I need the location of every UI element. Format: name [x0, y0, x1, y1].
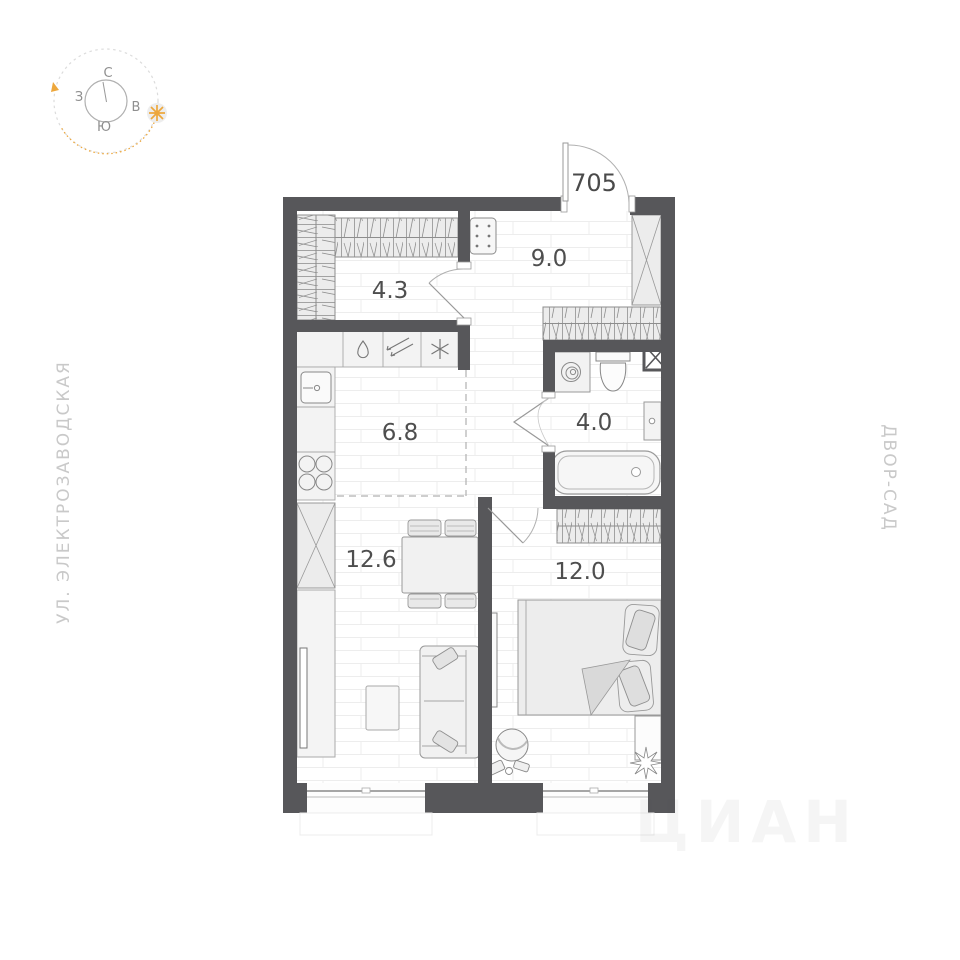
- washbasin: [644, 402, 661, 440]
- coffee-table: [366, 686, 399, 730]
- room-area-label-bedroom: 12.0: [554, 559, 605, 585]
- living-cabinet: [297, 503, 335, 588]
- street-label-left: УЛ. ЭЛЕКТРОЗАВОДСКАЯ: [54, 360, 74, 624]
- kitchen-sink: [301, 372, 331, 403]
- compass-north-label: С: [103, 66, 112, 81]
- entry-cabinet: [632, 215, 661, 305]
- bathtub: [552, 451, 660, 494]
- room-area-label-living: 12.6: [345, 547, 396, 573]
- round-chair: [496, 729, 528, 761]
- tv-sideboard: [297, 590, 335, 757]
- electric-panel: [470, 218, 496, 254]
- floorplan-page: 705 4.3 9.0 6.8 4.0 12.6 12.0 С З В Ю У: [0, 0, 960, 960]
- hallway-top-wardrobe: [335, 218, 458, 257]
- hallway-left-wardrobe: [297, 215, 335, 320]
- dining-table: [402, 537, 478, 593]
- tv-living: [300, 648, 307, 748]
- sofa: [420, 646, 480, 758]
- compass-west-label: З: [75, 90, 83, 105]
- room-area-label-hallway: 4.3: [372, 278, 409, 304]
- bed: [518, 600, 661, 715]
- desk: [635, 716, 661, 760]
- watermark: ЦИАН: [635, 788, 935, 856]
- room-area-label-entry: 9.0: [531, 246, 568, 272]
- compass: С З В Ю: [51, 49, 167, 154]
- apartment-number-label: 705: [571, 169, 617, 197]
- living-window: [300, 783, 432, 835]
- room-area-label-kitchen: 6.8: [382, 420, 419, 446]
- bedroom-wardrobe: [557, 509, 661, 543]
- room-area-label-bathroom: 4.0: [576, 410, 613, 436]
- sun-icon: [149, 105, 165, 121]
- entry-wardrobe: [543, 307, 661, 340]
- compass-east-label: В: [132, 100, 141, 115]
- street-label-right: ДВОР-САД: [879, 424, 899, 532]
- sun-path-arrow-icon: [51, 82, 59, 92]
- washing-machine: [552, 352, 590, 392]
- compass-south-label: Ю: [97, 120, 111, 135]
